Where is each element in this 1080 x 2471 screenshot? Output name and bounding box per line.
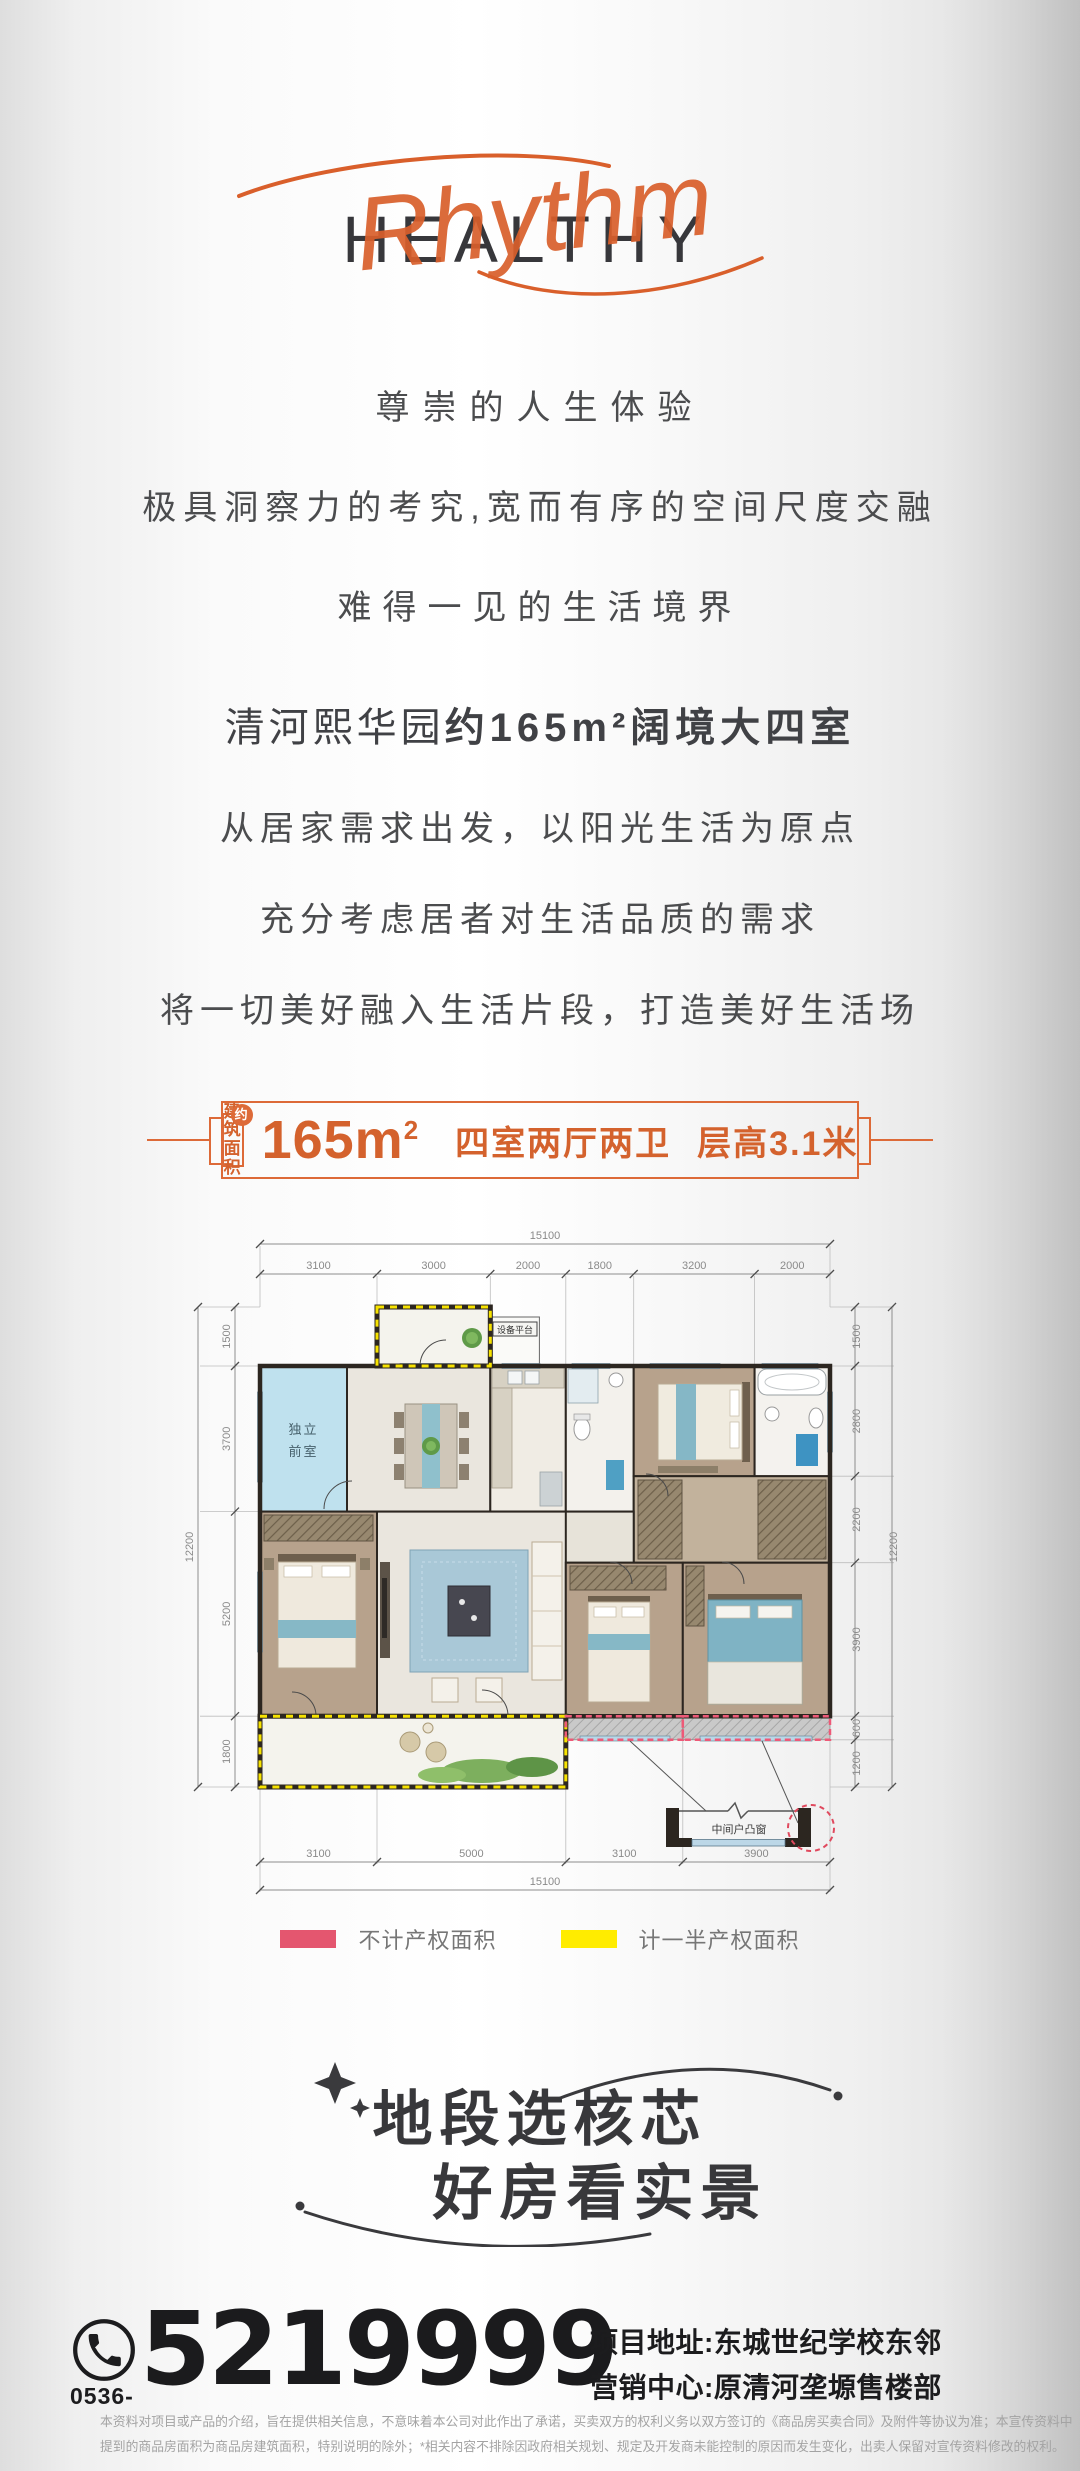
- slogan-dot-right: [834, 2092, 843, 2101]
- dim-top-seg-6: 2000: [780, 1260, 804, 1272]
- room-front-hall: [260, 1366, 347, 1512]
- sales-center-address: 营销中心:原清河垄塬售楼部: [590, 2365, 942, 2410]
- slogan-line-1: 地段选核芯: [373, 2086, 708, 2153]
- slogan-dot-left: [296, 2202, 305, 2211]
- disclaimer-line-2: 提到的商品房面积为商品房建筑面积，特别说明的除外；*相关内容不排除因政府相关规划…: [100, 2434, 1073, 2459]
- badge-end-line-left: [147, 1139, 209, 1141]
- dim-top-seg-1: 3100: [306, 1260, 330, 1272]
- dim-top-seg-2: 3000: [421, 1260, 445, 1272]
- dim-bottom-seg-2: 5000: [459, 1848, 483, 1860]
- layout-text: 四室两厅两卫: [455, 1125, 671, 1163]
- phone-area-code: 0536-: [70, 2383, 134, 2410]
- brand-logo: HEALTHY Rhythm: [217, 110, 837, 300]
- body-line-2: 充分考虑居者对生活品质的需求: [0, 892, 1080, 941]
- badge-end-ornament-right: [857, 1117, 871, 1165]
- spec-badge: 建筑 面积 约 165m2 四室两厅两卫层高3.1米: [221, 1101, 859, 1179]
- intro-line-1: 尊崇的人生体验: [0, 380, 1080, 429]
- dim-bottom-seg-3: 3100: [612, 1848, 636, 1860]
- equipment-label: 设备平台: [497, 1324, 533, 1335]
- dim-right-seg-5: 600: [851, 1719, 863, 1737]
- intro-line-3: 难得一见的生活境界: [0, 580, 1080, 629]
- built-area-label: 建筑 面积 约: [222, 1113, 244, 1167]
- body-line-3: 将一切美好融入生活片段，打造美好生活场: [0, 983, 1080, 1032]
- phone-icon: [72, 2318, 136, 2382]
- dim-right-seg-6: 1200: [851, 1751, 863, 1775]
- dim-bottom-total: 15100: [530, 1876, 561, 1888]
- dim-bottom-seg-1: 3100: [306, 1848, 330, 1860]
- poster: { "logo": { "wordmark": "HEALTHY", "scri…: [0, 0, 1080, 2471]
- intro-line-2: 极具洞察力的考究,宽而有序的空间尺度交融: [0, 480, 1080, 529]
- plan-legend: 不计产权面积 计一半产权面积: [0, 1923, 1080, 1955]
- floor-height-text: 层高3.1米: [697, 1125, 858, 1163]
- dim-right-seg-3: 2200: [851, 1507, 863, 1531]
- dim-right-seg-2: 2800: [851, 1409, 863, 1433]
- sparkle-icon: [314, 2062, 356, 2104]
- dim-right-seg-1: 1500: [851, 1324, 863, 1348]
- legend-swatch-no-property: [280, 1930, 336, 1948]
- sparkle-icon-small: [350, 2098, 370, 2118]
- area-value-base: 165m: [262, 1110, 404, 1170]
- bay-window-detail: 中间户凸窗: [630, 1741, 834, 1851]
- built-area-label-line2: 面积: [224, 1140, 242, 1177]
- dim-right-total: 12200: [888, 1532, 900, 1563]
- legend-label-half-property: 计一半产权面积: [639, 1923, 800, 1955]
- legend-label-no-property: 不计产权面积: [358, 1923, 496, 1955]
- dim-left-seg-1: 1500: [221, 1324, 233, 1348]
- dim-left-seg-2: 3700: [221, 1427, 233, 1451]
- phone-number: 5219999: [140, 2290, 616, 2409]
- project-address: 项目地址:东城世纪学校东邻: [590, 2320, 942, 2365]
- badge-end-line-right: [871, 1139, 933, 1141]
- floor-plan: 15100 3100 3000 2000 1800 3200 2000 1500…: [110, 1222, 970, 1914]
- dim-top-seg-3: 2000: [516, 1260, 540, 1272]
- body-headline-regular: 清河熙华园: [225, 706, 445, 750]
- bay-window-label: 中间户凸窗: [712, 1822, 767, 1836]
- slogan-line-2: 好房看实景: [432, 2160, 768, 2227]
- front-hall-label-line1: 独立: [288, 1422, 318, 1437]
- dim-bottom-seg-4: 3900: [744, 1848, 768, 1860]
- body-line-1: 从居家需求出发，以阳光生活为原点: [0, 801, 1080, 850]
- dim-top-seg-4: 1800: [588, 1260, 612, 1272]
- intro-copy: 尊崇的人生体验 极具洞察力的考究,宽而有序的空间尺度交融 难得一见的生活境界: [0, 380, 1080, 629]
- approx-mark: 约: [231, 1104, 253, 1126]
- body-headline: 清河熙华园约165m²阔境大四室: [0, 695, 1080, 753]
- dim-top-total: 15100: [530, 1230, 561, 1242]
- body-copy: 清河熙华园约165m²阔境大四室 从居家需求出发，以阳光生活为原点 充分考虑居者…: [0, 695, 1080, 1074]
- dim-right-seg-4: 3900: [851, 1627, 863, 1651]
- disclaimer-line-1: 本资料对项目或产品的介绍，旨在提供相关信息，不意味着本公司对此作出了承诺，买卖双…: [100, 2409, 1073, 2434]
- area-value-sup: 2: [404, 1115, 419, 1145]
- dim-left-total: 12200: [184, 1532, 196, 1563]
- legend-swatch-half-property: [561, 1930, 617, 1948]
- area-value: 165m2: [262, 1109, 420, 1171]
- layout-spec: 四室两厅两卫层高3.1米: [455, 1116, 858, 1165]
- front-hall-label-line2: 前室: [288, 1444, 318, 1459]
- dim-left-seg-3: 5200: [221, 1602, 233, 1626]
- body-headline-bold: 约165m²阔境大四室: [445, 706, 856, 750]
- dim-top-seg-5: 3200: [682, 1260, 706, 1272]
- disclaimer: 本资料对项目或产品的介绍，旨在提供相关信息，不意味着本公司对此作出了承诺，买卖双…: [100, 2409, 1073, 2459]
- slogan: 地段选核芯 好房看实景: [220, 2062, 860, 2247]
- dim-left-seg-4: 1800: [221, 1739, 233, 1763]
- address-block: 项目地址:东城世纪学校东邻 营销中心:原清河垄塬售楼部: [590, 2320, 942, 2410]
